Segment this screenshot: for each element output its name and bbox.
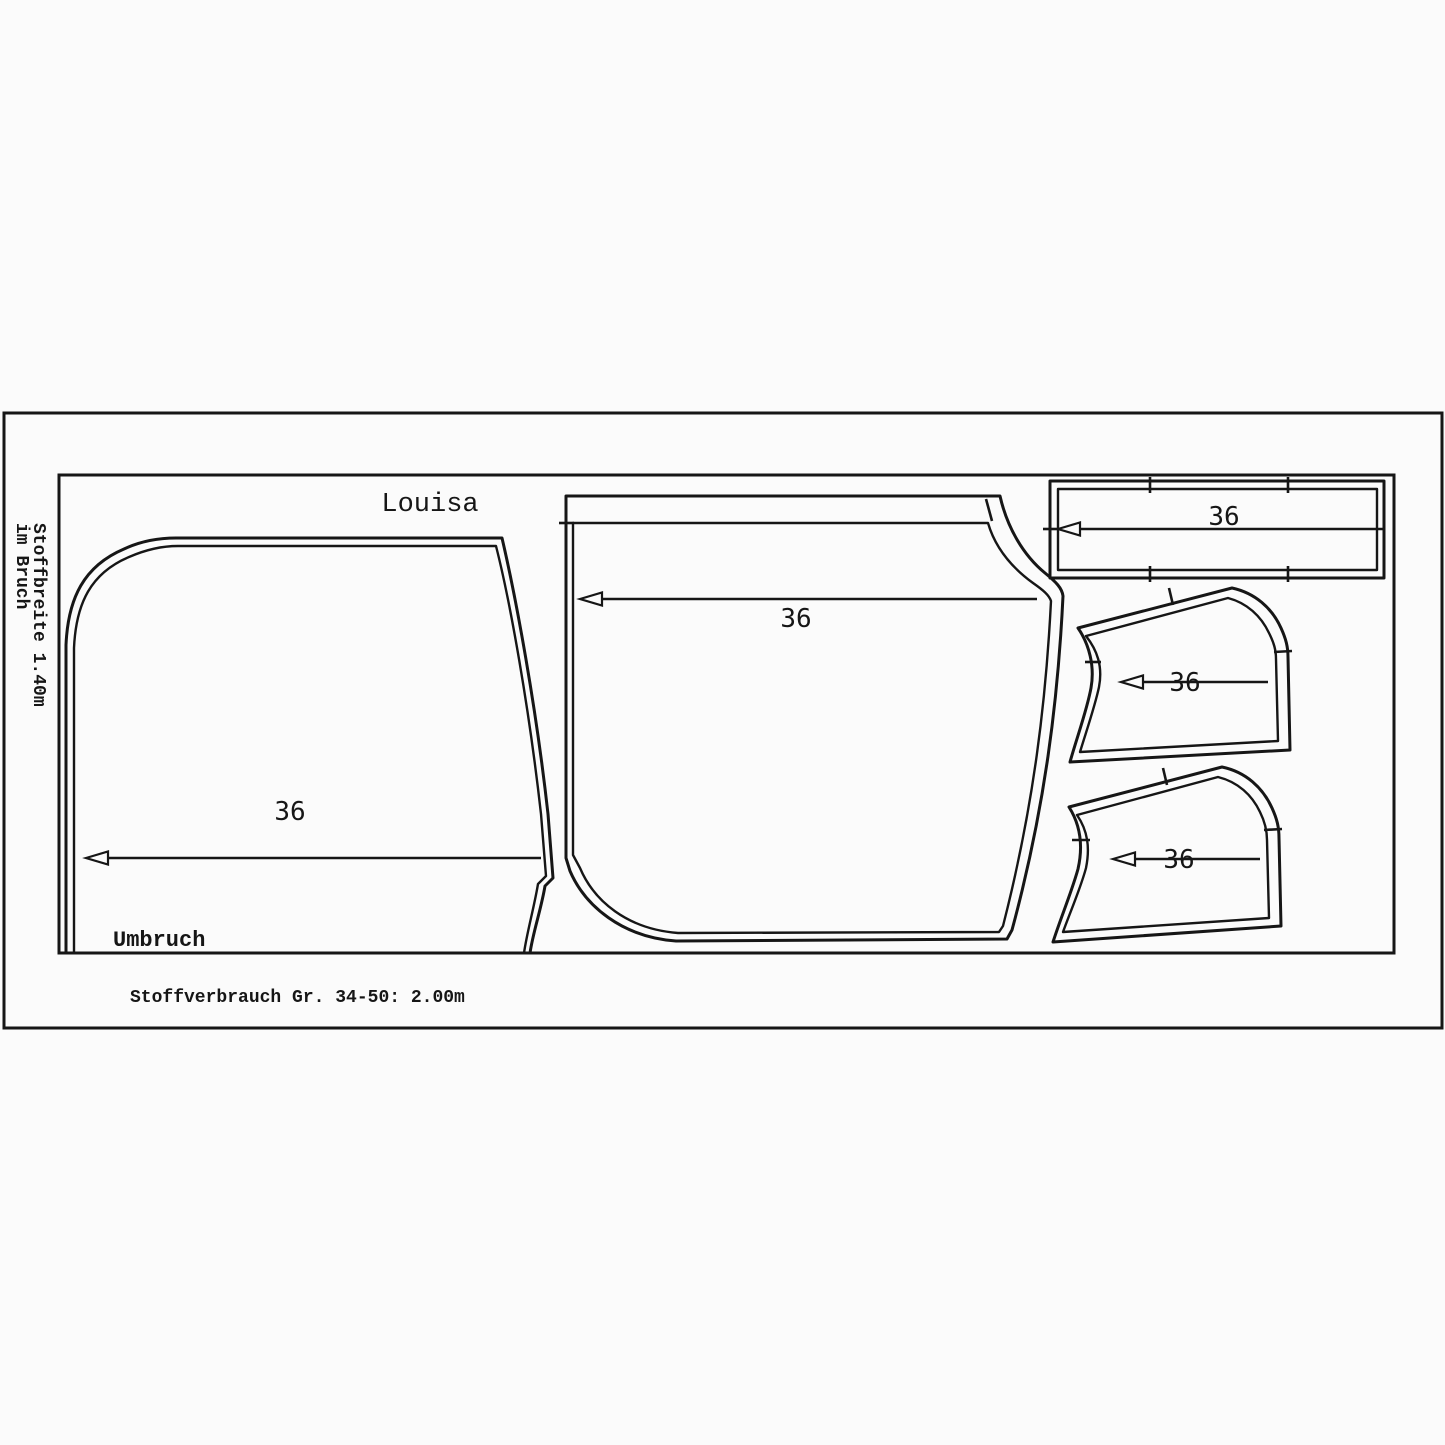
- fold-edge-label: Umbruch: [113, 928, 205, 953]
- page-background: [0, 0, 1445, 1445]
- waistband-size-label: 36: [1208, 502, 1239, 532]
- layout-title: Louisa: [381, 490, 478, 520]
- pattern-layout-sheet: Louisa Stoffbreite 1.40m im Bruch Umbruc…: [0, 0, 1445, 1445]
- pocket-upper-size-label: 36: [1169, 668, 1200, 698]
- pocket-upper-notch-right: [1274, 651, 1292, 652]
- pocket-lower-notch-right: [1264, 829, 1282, 830]
- cutting-layout-drawing: Louisa Stoffbreite 1.40m im Bruch Umbruc…: [0, 0, 1445, 1445]
- front-size-label: 36: [780, 604, 811, 634]
- pocket-lower-size-label: 36: [1163, 845, 1194, 875]
- back-size-label: 36: [274, 797, 305, 827]
- fabric-usage-label: Stoffverbrauch Gr. 34-50: 2.00m: [130, 988, 465, 1008]
- fold-note-label: im Bruch: [11, 523, 31, 609]
